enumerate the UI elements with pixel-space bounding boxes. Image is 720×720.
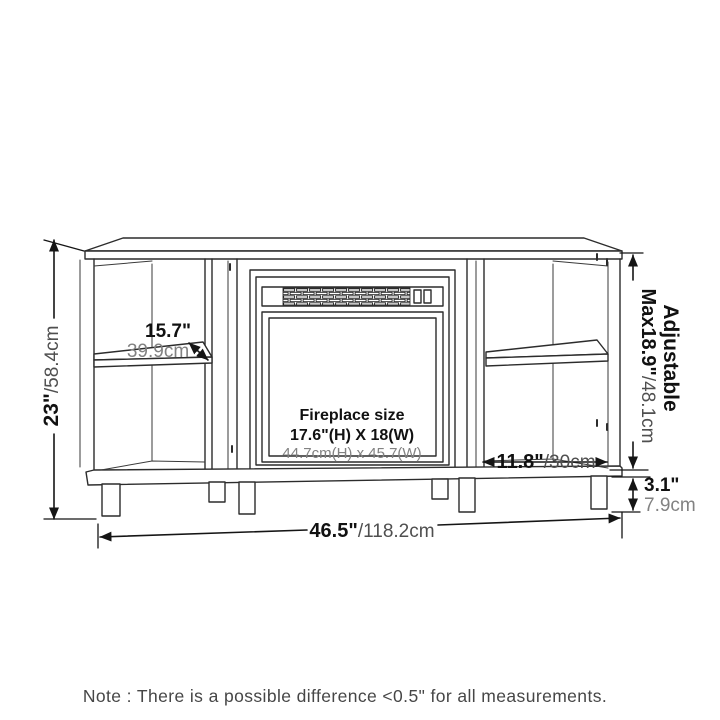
fireplace-size-inches: 17.6"(H) X 18(W)	[290, 427, 414, 444]
fireplace-control-slot-2	[424, 290, 431, 303]
leg-front-midright	[459, 478, 475, 512]
width-arrow-right	[438, 518, 620, 525]
leg-front-right	[591, 476, 607, 509]
fireplace-vent-mesh	[283, 288, 410, 305]
leg-back-right	[432, 479, 448, 499]
height-label: 23"/58.4cm	[40, 326, 63, 427]
right-shelf	[486, 340, 608, 366]
fireplace-size-title: Fireplace size	[300, 407, 405, 424]
top-board-surface	[85, 238, 622, 251]
shelf-depth-inches: 15.7"	[145, 321, 191, 342]
fireplace-control-slot-1	[414, 290, 421, 303]
top-board-front-edge	[85, 251, 622, 259]
dimension-leg-height: 3.1" 7.9cm	[612, 475, 696, 516]
adjustable-value-label: Max18.9"/48.1cm	[637, 289, 659, 444]
measurement-note: Note : There is a possible difference <0…	[83, 686, 607, 706]
fireplace-insert: Fireplace size 17.6"(H) X 18(W) 44.7cm(H…	[256, 277, 449, 465]
leg-back-left	[209, 482, 225, 502]
leg-front-midleft	[239, 482, 255, 514]
adjustable-word-label: Adjustable	[659, 304, 682, 411]
fireplace-size-cm: 44.7cm(H) x 45.7(W)	[282, 445, 421, 462]
leg-front-left	[102, 484, 120, 516]
cabinet-drawing: Fireplace size 17.6"(H) X 18(W) 44.7cm(H…	[80, 238, 622, 516]
diagram-page: Fireplace size 17.6"(H) X 18(W) 44.7cm(H…	[0, 0, 720, 720]
tv-stand-dimension-diagram: Fireplace size 17.6"(H) X 18(W) 44.7cm(H…	[0, 0, 720, 720]
width-label: 46.5"/118.2cm	[309, 520, 434, 542]
open-shelf-label: 11.8"/30cm	[496, 451, 595, 473]
width-arrow-left	[100, 530, 307, 537]
dimension-open-shelf: 11.8"/30cm	[483, 451, 607, 473]
leg-inches: 3.1"	[644, 475, 679, 496]
shelf-depth-cm: 39.9cm	[127, 341, 189, 362]
dimension-adjustable: Max18.9"/48.1cm Adjustable	[610, 253, 682, 470]
dimension-width: 46.5"/118.2cm	[98, 512, 622, 548]
leg-cm: 7.9cm	[644, 495, 696, 516]
